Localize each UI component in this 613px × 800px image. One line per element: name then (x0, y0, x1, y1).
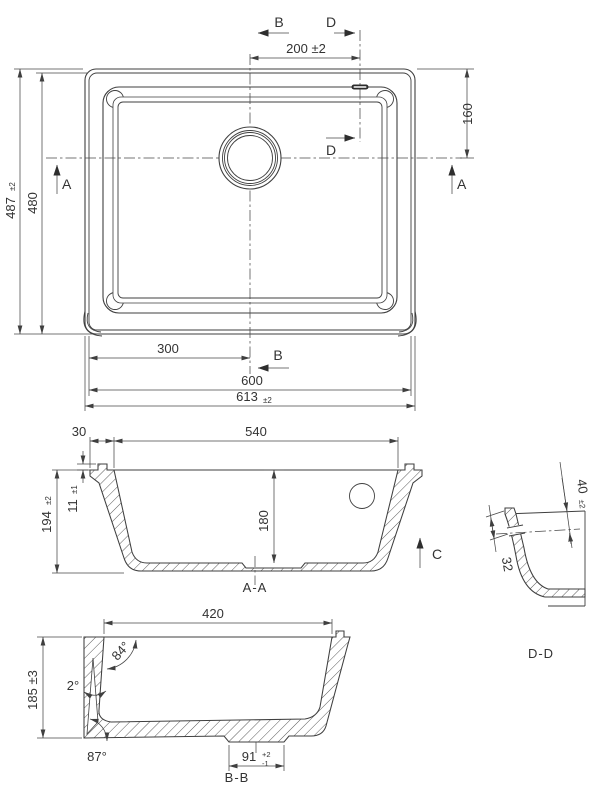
ext-line (490, 534, 508, 540)
dim-194-tol: ±2 (44, 496, 53, 505)
dim-91-tol-plus: +2 (262, 750, 271, 759)
dim-11: 11 (65, 499, 80, 513)
dim-30: 30 (72, 424, 86, 439)
section-b-label-bottom: B (273, 347, 282, 363)
dd-wall-cut (505, 508, 585, 597)
dim-540: 540 (245, 424, 267, 439)
section-a-label-left: A (62, 176, 72, 192)
dim-613: 613 (236, 389, 258, 404)
sink-technical-drawing: B D 200 ±2 160 D A A 487 ±2 480 (0, 0, 613, 800)
dim-480: 480 (25, 192, 40, 214)
angle-84: 84° (109, 639, 133, 664)
dim-487: 487 (3, 197, 18, 219)
detail-dd-view: 40 ±2 32 D-D (486, 462, 593, 661)
top-view: B D 200 ±2 160 D A A 487 ±2 480 (3, 14, 475, 411)
technical-drawing-page: B D 200 ±2 160 D A A 487 ±2 480 (0, 0, 613, 800)
overflow-slot (352, 85, 369, 90)
detail-dd-title: D-D (528, 646, 554, 661)
section-aa-view: 30 540 194 ±2 11 ±1 180 C A-A (39, 424, 442, 595)
section-bb-view: 420 185 ±3 84° 2° 87° 91 +2 -1 B-B (25, 606, 350, 785)
view-c-label: C (432, 546, 442, 562)
dim-11-tol: ±1 (70, 485, 79, 494)
dim-32: 32 (499, 556, 516, 573)
dim-613-tol: ±2 (263, 396, 272, 405)
drain-opening (219, 127, 281, 189)
dim-91: 91 (242, 749, 256, 764)
dim-420: 420 (202, 606, 224, 621)
section-aa-title: A-A (243, 580, 268, 595)
section-a-label-right: A (457, 176, 467, 192)
dim-40-arrow-top (562, 478, 567, 511)
dd-top-surface (505, 511, 585, 514)
dim-40-tol: ±2 (577, 499, 587, 510)
dim-600: 600 (241, 373, 263, 388)
section-d-label-top: D (326, 14, 336, 30)
overflow-hole (350, 484, 375, 509)
dim-160: 160 (460, 103, 475, 125)
dim-32-arrows (491, 518, 494, 539)
dim-180: 180 (256, 510, 271, 532)
ext-line (486, 511, 504, 517)
dim-91-tol-minus: -1 (262, 759, 269, 768)
angle-87: 87° (87, 749, 107, 764)
dim-300: 300 (157, 341, 179, 356)
section-bb-title: B-B (225, 770, 250, 785)
section-d-label-mid: D (326, 142, 336, 158)
angle-2: 2° (67, 678, 79, 693)
dim-200: 200 ±2 (286, 41, 326, 56)
dim-40: 40 (574, 478, 591, 494)
dim-487-tol: ±2 (8, 182, 17, 191)
section-b-label-top: B (274, 14, 283, 30)
dim-194: 194 (39, 511, 54, 533)
dim-185: 185 ±3 (25, 670, 40, 710)
